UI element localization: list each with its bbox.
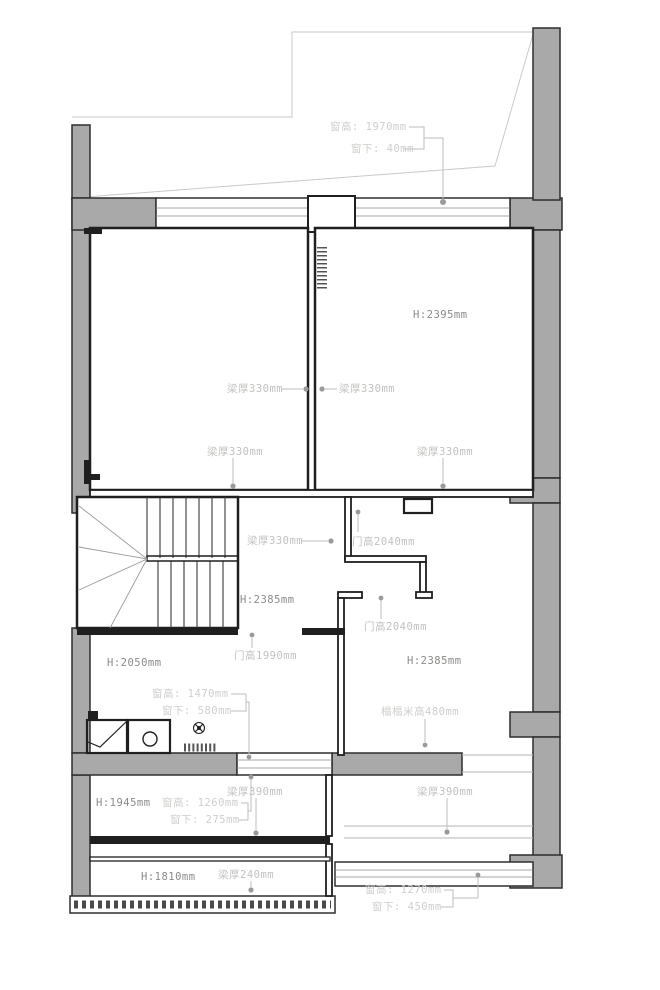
annotation-window-bl-height: 窗高: 1260mm bbox=[162, 797, 239, 810]
annotation-window-top-height: 窗高: 1970mm bbox=[330, 121, 407, 134]
staircase bbox=[77, 497, 238, 628]
annotation-height-hall: H:2385mm bbox=[240, 594, 295, 607]
wall-br-top-b bbox=[416, 592, 432, 598]
beam-wall-black bbox=[90, 836, 330, 844]
annotation-beam-330-c: 梁厚330mm bbox=[207, 446, 263, 459]
annotation-beam-330-d: 梁厚330mm bbox=[417, 446, 473, 459]
corner-stub-b bbox=[84, 460, 90, 484]
wall-right-lower bbox=[533, 737, 560, 857]
annotation-beam-240: 梁厚240mm bbox=[218, 869, 274, 882]
annotation-door-1990: 门高1990mm bbox=[234, 650, 297, 663]
wall-right-column bbox=[533, 28, 560, 200]
wall-hall-stub bbox=[302, 628, 345, 635]
annotation-window-mid-height: 窗高: 1470mm bbox=[152, 688, 229, 701]
floor-plan-canvas: 窗高: 1970mm 窗下: 40mm H:2395mm 梁厚330mm 梁厚3… bbox=[0, 0, 660, 990]
annotation-beam-330-a: 梁厚330mm bbox=[227, 383, 283, 396]
annotation-tatami-height: 榻榻米高480mm bbox=[381, 706, 459, 719]
annotation-window-br-height: 窗高: 1270mm bbox=[365, 884, 442, 897]
wall-br-left bbox=[338, 598, 344, 755]
annotation-window-top-sill: 窗下: 40mm bbox=[351, 143, 414, 156]
floor-drain-icon bbox=[194, 723, 205, 734]
annotation-beam-390-b: 梁厚390mm bbox=[417, 786, 473, 799]
corridor-pier bbox=[404, 499, 432, 513]
wall-right-mid bbox=[533, 503, 560, 712]
wall-top-right-corner bbox=[510, 198, 562, 230]
wall-br-top-a bbox=[338, 592, 362, 598]
washbasin-unit bbox=[128, 720, 170, 753]
wall-left-stub bbox=[72, 125, 90, 200]
annotation-height-room-top-right: H:2395mm bbox=[413, 309, 468, 322]
strip-beam-line bbox=[90, 857, 330, 861]
window-top-right bbox=[355, 198, 510, 230]
annotation-height-bath: H:2050mm bbox=[107, 657, 162, 670]
wall-right-pier-b bbox=[510, 712, 560, 737]
wall-left-lower bbox=[72, 775, 90, 898]
window-top-left bbox=[156, 198, 308, 230]
annotation-window-mid-sill: 窗下: 580mm bbox=[162, 705, 232, 718]
annotation-beam-330-e: 梁厚330mm bbox=[247, 535, 303, 548]
annotation-beam-330-b: 梁厚330mm bbox=[339, 383, 395, 396]
corner-stub-a bbox=[84, 228, 102, 234]
shower-door-flap bbox=[88, 721, 127, 747]
basin-bowl bbox=[143, 732, 157, 746]
wall-corridor-left bbox=[345, 497, 351, 560]
annotation-door-2040-b: 门高2040mm bbox=[364, 621, 427, 634]
shower-unit bbox=[87, 720, 127, 753]
wall-corridor-right bbox=[420, 562, 426, 594]
wall-bl-right bbox=[326, 775, 332, 836]
corner-stub-c bbox=[84, 474, 100, 480]
beam-wall-right bbox=[332, 753, 462, 775]
chimney-box bbox=[308, 196, 355, 232]
annotation-height-strip: H:1810mm bbox=[141, 871, 196, 884]
bathroom-fixtures bbox=[87, 720, 216, 753]
window-bottom-right bbox=[335, 862, 533, 886]
beam-wall-left bbox=[72, 753, 237, 775]
annotation-window-bl-sill: 窗下: 275mm bbox=[170, 814, 240, 827]
floor-plan-drawing bbox=[0, 0, 660, 990]
annotation-door-2040-a: 门高2040mm bbox=[352, 536, 415, 549]
wall-right-upper bbox=[533, 230, 560, 478]
wall-corridor-bottom bbox=[345, 556, 426, 562]
annotation-height-room-bottom-left: H:1945mm bbox=[96, 797, 151, 810]
wall-strip-right bbox=[326, 844, 332, 896]
room-top-left-outline bbox=[90, 228, 308, 490]
wall-top-pier bbox=[72, 198, 156, 230]
annotation-height-room-bottom-right: H:2385mm bbox=[407, 655, 462, 668]
annotation-window-br-sill: 窗下: 450mm bbox=[372, 901, 442, 914]
